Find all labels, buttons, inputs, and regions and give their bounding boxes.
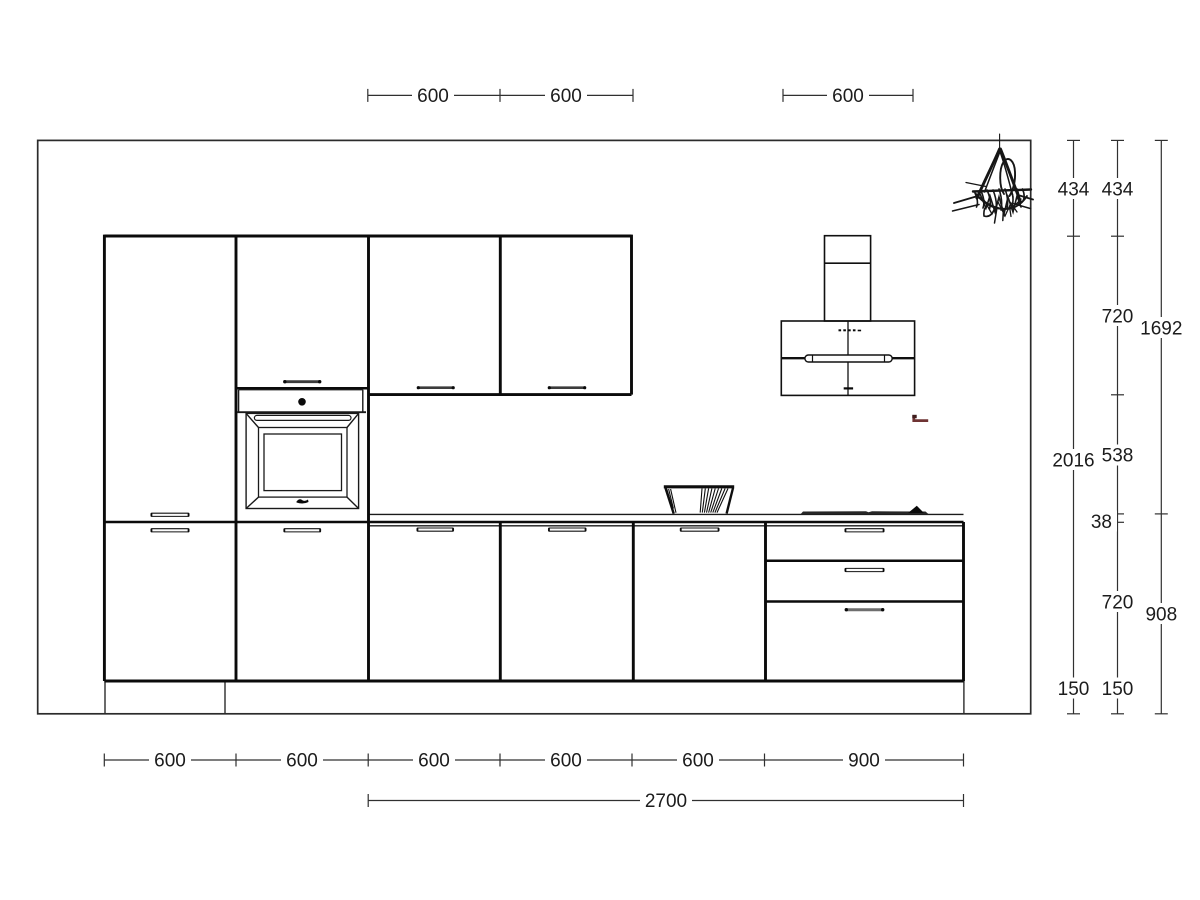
svg-text:538: 538 bbox=[1102, 445, 1134, 466]
svg-text:600: 600 bbox=[682, 751, 714, 772]
svg-text:600: 600 bbox=[417, 86, 449, 107]
svg-text:434: 434 bbox=[1102, 179, 1134, 200]
svg-text:720: 720 bbox=[1102, 306, 1134, 327]
svg-text:2016: 2016 bbox=[1052, 450, 1094, 471]
svg-text:600: 600 bbox=[832, 86, 864, 107]
svg-text:600: 600 bbox=[286, 751, 318, 772]
svg-text:600: 600 bbox=[550, 86, 582, 107]
svg-text:600: 600 bbox=[418, 751, 450, 772]
svg-text:720: 720 bbox=[1102, 592, 1134, 613]
svg-text:150: 150 bbox=[1102, 679, 1134, 700]
svg-text:150: 150 bbox=[1058, 679, 1090, 700]
svg-text:1692: 1692 bbox=[1140, 318, 1182, 339]
svg-text:434: 434 bbox=[1058, 179, 1090, 200]
svg-text:600: 600 bbox=[154, 751, 186, 772]
svg-text:900: 900 bbox=[848, 751, 880, 772]
svg-text:600: 600 bbox=[550, 751, 582, 772]
svg-text:2700: 2700 bbox=[645, 791, 687, 812]
svg-text:38: 38 bbox=[1091, 512, 1112, 533]
svg-text:908: 908 bbox=[1145, 604, 1177, 625]
